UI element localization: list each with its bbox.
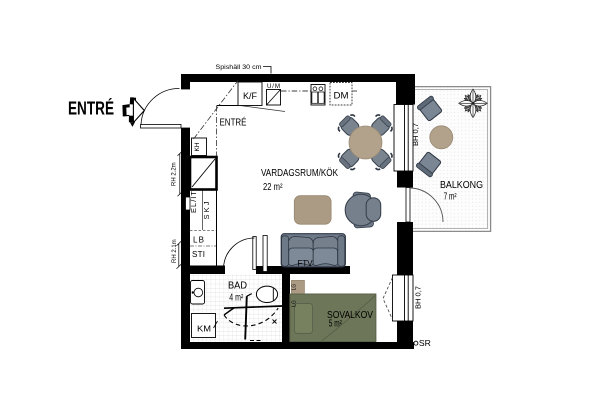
- svg-text:FTV: FTV: [298, 259, 314, 268]
- svg-text:EL/IT: EL/IT: [189, 191, 198, 213]
- svg-text:VARDAGSRUM/KÖK: VARDAGSRUM/KÖK: [261, 168, 338, 179]
- svg-text:LB: LB: [193, 236, 204, 245]
- svg-text:U/M: U/M: [267, 83, 280, 90]
- svg-text:Spishäll 30 cm: Spishäll 30 cm: [216, 64, 262, 71]
- svg-text:SKJ: SKJ: [202, 201, 211, 219]
- svg-text:RH 2.2m: RH 2.2m: [172, 162, 178, 186]
- svg-text:RH 2.1m: RH 2.1m: [172, 239, 178, 263]
- svg-text:SR: SR: [419, 339, 431, 348]
- svg-text:KH: KH: [194, 142, 201, 151]
- svg-text:K/F: K/F: [243, 91, 257, 101]
- svg-text:STI: STI: [192, 250, 205, 259]
- svg-text:7 m²: 7 m²: [444, 192, 458, 203]
- svg-text:DM: DM: [334, 91, 349, 101]
- svg-text:ENTRÉ: ENTRÉ: [220, 118, 247, 129]
- svg-text:BAD: BAD: [228, 280, 247, 292]
- svg-text:BH 0,7: BH 0,7: [414, 286, 423, 309]
- svg-text:KM: KM: [197, 324, 211, 334]
- svg-text:LG: LG: [292, 300, 298, 307]
- svg-text:BH 0,7: BH 0,7: [411, 123, 420, 146]
- svg-text:5 m²: 5 m²: [329, 319, 343, 330]
- svg-text:ENTRÉ: ENTRÉ: [68, 98, 114, 119]
- svg-text:4 m²: 4 m²: [229, 293, 244, 304]
- svg-text:LG: LG: [292, 284, 298, 291]
- svg-text:22 m²: 22 m²: [263, 182, 283, 193]
- svg-text:BALKONG: BALKONG: [440, 180, 483, 191]
